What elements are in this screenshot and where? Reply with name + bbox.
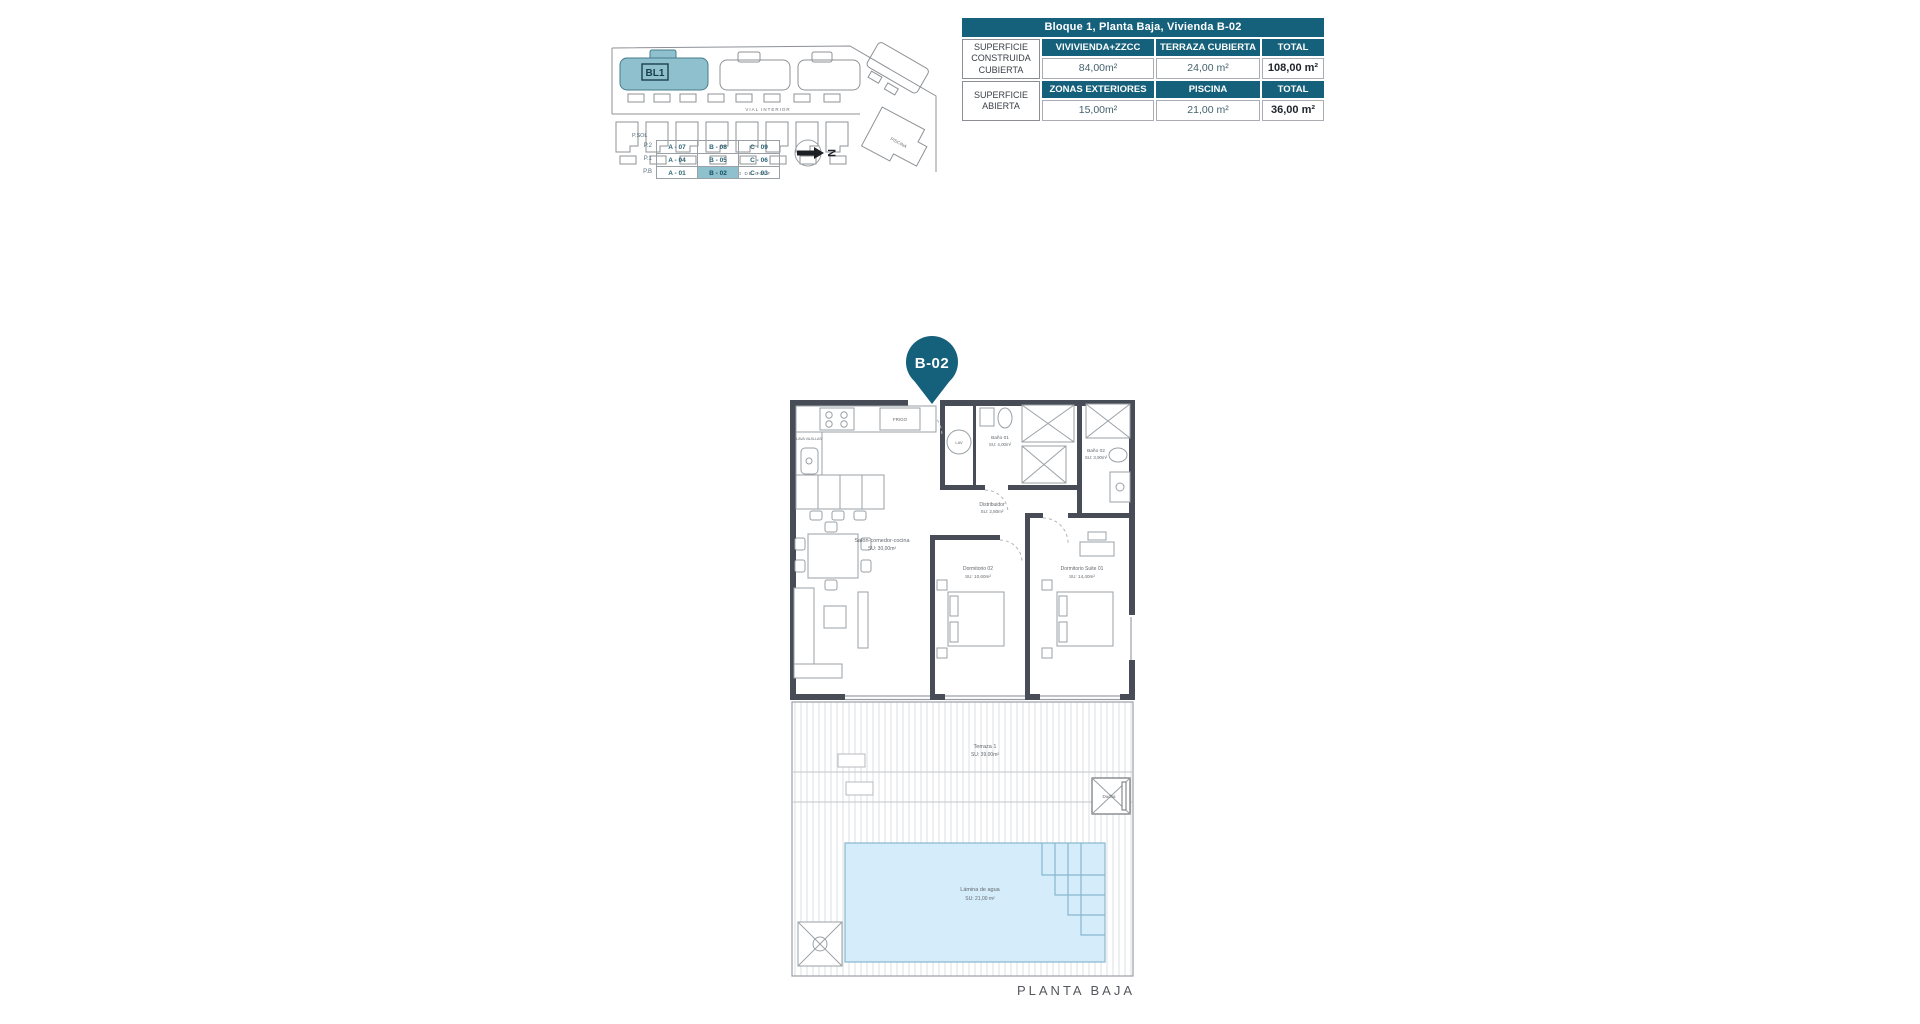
pool: Lámina de agua SU: 21,00 m² [845,843,1105,962]
table-row: P.1 A - 04 B - 05 C - 06 [630,153,780,166]
floor-plan: Lámina de agua SU: 21,00 m² Ducha Terraz… [780,330,1150,1005]
pool-area: SU: 21,00 m² [965,896,995,902]
building-2 [720,52,790,90]
suite-area: SU: 14,40m² [1069,574,1095,579]
surface-area-table: Bloque 1, Planta Baja, Vivienda B-02 SUP… [962,18,1324,121]
dorm2-label: Dormitorio 02 [963,566,993,572]
terraza-label: Terraza 1 [974,744,997,750]
plan-caption: PLANTA BAJA [935,983,1135,998]
unit-cell: B - 05 [697,153,738,166]
street-top-label: VIAL INTERIOR [745,107,790,112]
sofa [794,588,868,678]
row-label: SUPERFICIE CONSTRUIDA CUBIERTA [962,39,1040,79]
col-header: TOTAL [1262,39,1324,56]
distribuidor-area: SU: 2,80m² [981,509,1004,514]
level-label: P.B [630,166,656,179]
lavavajillas-label: LAVA VAJILLAS [796,437,822,441]
level-label: P.2 [630,140,656,153]
area-value: 24,00 m² [1156,58,1260,79]
kitchen-island [796,475,884,520]
unit-cell: A - 04 [656,153,697,166]
area-value: 21,00 m² [1156,100,1260,121]
col-header: TOTAL [1262,81,1324,98]
unit-level-table: P.SOL P.2 A - 07 B - 08 C - 09 P.1 A - 0… [630,133,780,179]
terraza-area: SU: 39,00m² [971,752,999,758]
bano2-label: Baño 02 [1087,448,1105,454]
row-label: SUPERFICIE ABIERTA [962,81,1040,121]
suite-label: Dormitorio Suite 01 [1061,566,1104,572]
dining-table [795,522,871,590]
roof-level-label: P.SOL [632,133,780,139]
suite-bed [1042,532,1114,658]
area-total: 108,00 m² [1262,58,1324,79]
piscina-label: PISCINA [890,136,908,149]
table-row: P.B A - 01 B - 02 C - 03 [630,166,780,179]
pool-label: Lámina de agua [960,887,1000,893]
unit-cell: A - 01 [656,166,697,179]
col-header: PISCINA [1156,81,1260,98]
building-3 [798,52,860,90]
lounger [838,754,865,767]
north-arrow: N [792,134,844,176]
area-value: 84,00m² [1042,58,1154,79]
bano2-area: SU: 3,90m² [1085,455,1108,460]
planter [798,922,842,966]
col-header: TERRAZA CUBIERTA [1156,39,1260,56]
col-header: ZONAS EXTERIORES [1042,81,1154,98]
bedroom2-bed [937,580,1004,658]
unit-cell: C - 06 [738,153,780,166]
dorm2-area: SU: 10,60m² [965,574,991,579]
unit-cell: C - 09 [738,140,780,153]
bano1-label: Baño 01 [991,435,1009,441]
frigo-label: FRIGO [893,417,908,422]
level-label: P.1 [630,153,656,166]
area-value: 15,00m² [1042,100,1154,121]
unit-cell: C - 03 [738,166,780,179]
salon-area: SU: 30,00m² [868,546,896,552]
lounger [846,782,873,795]
kitchen-counter [796,406,936,482]
building-bl1: BL1 [620,50,708,90]
parking-row-top [628,94,840,102]
col-header: VIVIVIENDA+ZZCC [1042,39,1154,56]
bl1-label: BL1 [646,68,665,79]
pin-label: B-02 [915,355,950,372]
unit-cell: B - 08 [697,140,738,153]
ducha-label: Ducha [1102,794,1116,799]
area-table-title: Bloque 1, Planta Baja, Vivienda B-02 [962,18,1324,37]
outdoor-shower: Ducha [1092,778,1130,814]
north-letter: N [825,149,837,157]
unit-cell-highlighted: B - 02 [697,166,738,179]
distribuidor-label: Distribuidor [979,502,1005,508]
table-row: P.2 A - 07 B - 08 C - 09 [630,140,780,153]
salon-label: Salón-comedor-cocina [854,538,910,544]
area-total: 36,00 m² [1262,100,1324,121]
unit-cell: A - 07 [656,140,697,153]
lav-label: LAV [955,440,963,445]
bano1-area: SU: 4,00m² [989,442,1012,447]
unit-pin: B-02 [906,336,958,404]
